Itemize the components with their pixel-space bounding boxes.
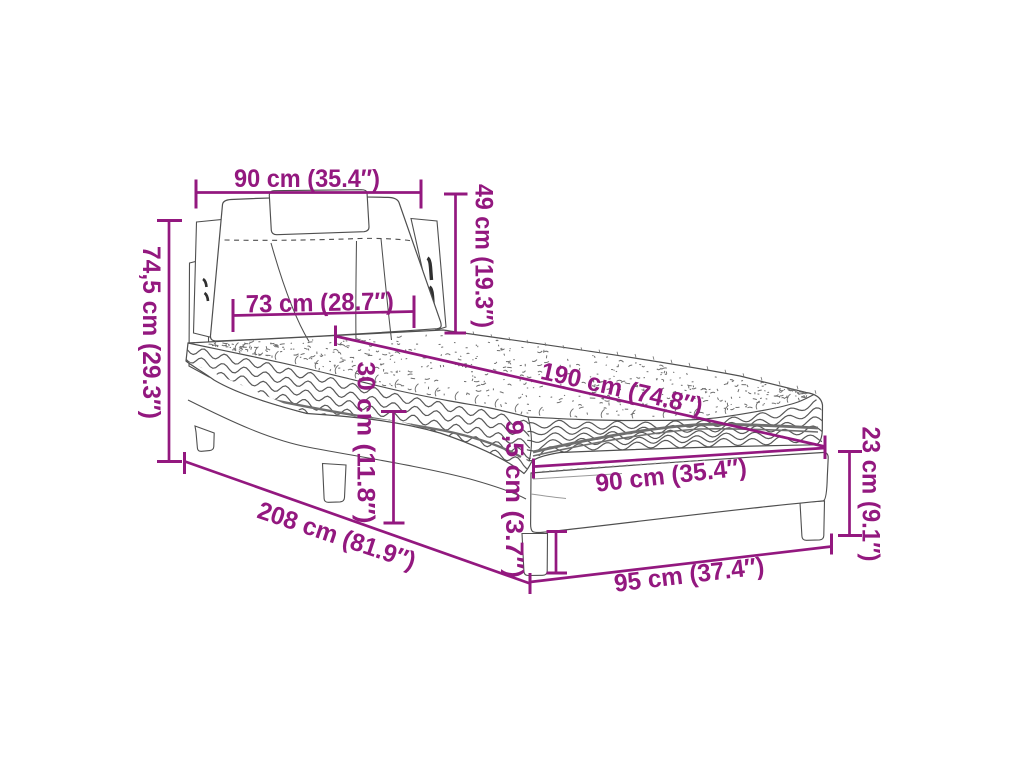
svg-text:30 cm (11.8″): 30 cm (11.8″): [352, 362, 380, 524]
svg-text:9,5 cm (3.7″): 9,5 cm (3.7″): [500, 420, 528, 578]
svg-text:74,5 cm (29.3″): 74,5 cm (29.3″): [137, 246, 165, 419]
svg-text:49 cm (19.3″): 49 cm (19.3″): [470, 184, 498, 328]
svg-text:73 cm (28.7″): 73 cm (28.7″): [246, 287, 395, 318]
svg-text:23 cm (9.1″): 23 cm (9.1″): [857, 427, 885, 562]
svg-text:90 cm (35.4″): 90 cm (35.4″): [234, 165, 380, 193]
